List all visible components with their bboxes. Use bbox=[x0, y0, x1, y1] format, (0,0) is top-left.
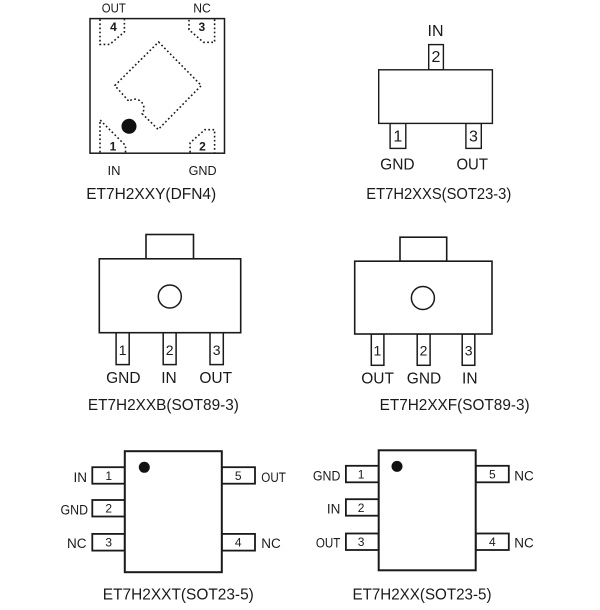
svg-text:2: 2 bbox=[166, 342, 174, 358]
svg-text:NC: NC bbox=[261, 536, 281, 551]
svg-text:3: 3 bbox=[358, 535, 365, 549]
svg-text:NC: NC bbox=[67, 536, 87, 551]
svg-text:2: 2 bbox=[358, 501, 365, 515]
svg-text:GND: GND bbox=[313, 469, 341, 484]
svg-text:ET7H2XXS(SOT23-3): ET7H2XXS(SOT23-3) bbox=[366, 186, 511, 203]
svg-text:OUT: OUT bbox=[361, 371, 394, 388]
svg-text:3: 3 bbox=[213, 342, 221, 358]
svg-text:4: 4 bbox=[110, 20, 117, 34]
svg-text:GND: GND bbox=[407, 371, 441, 388]
svg-text:OUT: OUT bbox=[102, 0, 126, 15]
svg-text:NC: NC bbox=[514, 469, 534, 484]
svg-text:IN: IN bbox=[327, 502, 341, 517]
svg-text:IN: IN bbox=[108, 163, 121, 178]
svg-text:IN: IN bbox=[161, 370, 177, 387]
svg-text:ET7H2XXT(SOT23-5): ET7H2XXT(SOT23-5) bbox=[103, 587, 254, 604]
svg-text:NC: NC bbox=[193, 0, 211, 15]
svg-text:GND: GND bbox=[380, 157, 415, 174]
svg-text:1: 1 bbox=[110, 139, 117, 153]
svg-text:4: 4 bbox=[235, 536, 242, 550]
svg-text:IN: IN bbox=[428, 23, 444, 40]
svg-text:1: 1 bbox=[105, 469, 112, 483]
svg-text:3: 3 bbox=[105, 536, 112, 550]
svg-text:4: 4 bbox=[489, 535, 496, 549]
svg-text:OUT: OUT bbox=[316, 536, 341, 551]
svg-text:1: 1 bbox=[374, 343, 382, 359]
svg-text:OUT: OUT bbox=[456, 157, 488, 174]
svg-text:IN: IN bbox=[462, 371, 478, 388]
svg-text:1: 1 bbox=[119, 342, 127, 358]
svg-text:NC: NC bbox=[514, 536, 534, 551]
svg-text:IN: IN bbox=[74, 470, 88, 485]
svg-text:3: 3 bbox=[198, 20, 205, 34]
svg-text:GND: GND bbox=[189, 163, 217, 178]
svg-text:5: 5 bbox=[235, 469, 242, 483]
svg-text:GND: GND bbox=[61, 502, 89, 517]
svg-text:2: 2 bbox=[199, 139, 206, 153]
svg-text:3: 3 bbox=[465, 343, 473, 359]
svg-text:2: 2 bbox=[432, 49, 441, 66]
svg-text:GND: GND bbox=[106, 370, 140, 387]
svg-text:OUT: OUT bbox=[261, 470, 286, 485]
svg-text:2: 2 bbox=[105, 502, 112, 516]
svg-text:OUT: OUT bbox=[199, 370, 232, 387]
svg-text:2: 2 bbox=[420, 343, 428, 359]
svg-text:5: 5 bbox=[489, 467, 496, 481]
svg-text:1: 1 bbox=[393, 129, 402, 146]
svg-text:1: 1 bbox=[358, 467, 365, 481]
svg-text:ET7H2XXB(SOT89-3): ET7H2XXB(SOT89-3) bbox=[88, 397, 239, 414]
svg-text:3: 3 bbox=[469, 129, 478, 146]
svg-text:ET7H2XXF(SOT89-3): ET7H2XXF(SOT89-3) bbox=[380, 397, 530, 414]
svg-text:ET7H2XXY(DFN4): ET7H2XXY(DFN4) bbox=[86, 186, 216, 203]
svg-text:ET7H2XX(SOT23-5): ET7H2XX(SOT23-5) bbox=[353, 587, 492, 604]
